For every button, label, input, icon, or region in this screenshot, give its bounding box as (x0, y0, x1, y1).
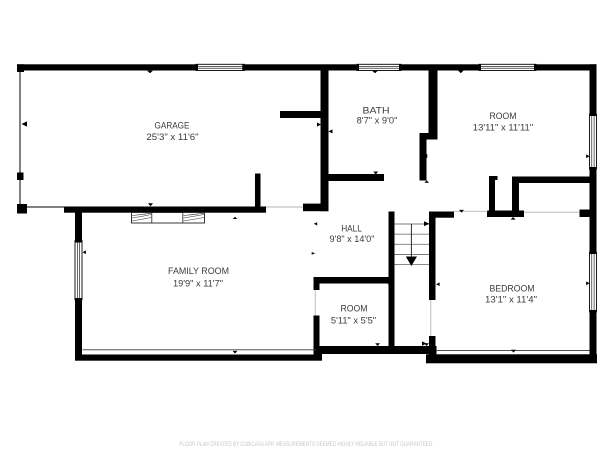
svg-text:8'7" x 9'0": 8'7" x 9'0" (357, 115, 398, 126)
svg-text:ROOM: ROOM (490, 111, 517, 121)
svg-text:25'3" x 11'6": 25'3" x 11'6" (146, 131, 198, 142)
svg-text:ROOM: ROOM (341, 304, 368, 314)
svg-text:FAMILY ROOM: FAMILY ROOM (168, 266, 229, 276)
svg-text:13'11" x 11'11": 13'11" x 11'11" (473, 122, 533, 133)
svg-text:FLOOR PLAN CREATED BY CUBICASA: FLOOR PLAN CREATED BY CUBICASA APP. MEAS… (180, 441, 434, 448)
svg-text:9'8" x 14'0": 9'8" x 14'0" (330, 233, 375, 244)
svg-text:HALL: HALL (341, 223, 362, 233)
svg-text:BEDROOM: BEDROOM (490, 284, 535, 294)
svg-text:13'1" x 11'4": 13'1" x 11'4" (485, 293, 537, 304)
svg-text:GARAGE: GARAGE (155, 121, 190, 131)
svg-text:5'11" x 5'5": 5'11" x 5'5" (331, 314, 376, 325)
svg-text:19'9" x 11'7": 19'9" x 11'7" (173, 277, 223, 288)
